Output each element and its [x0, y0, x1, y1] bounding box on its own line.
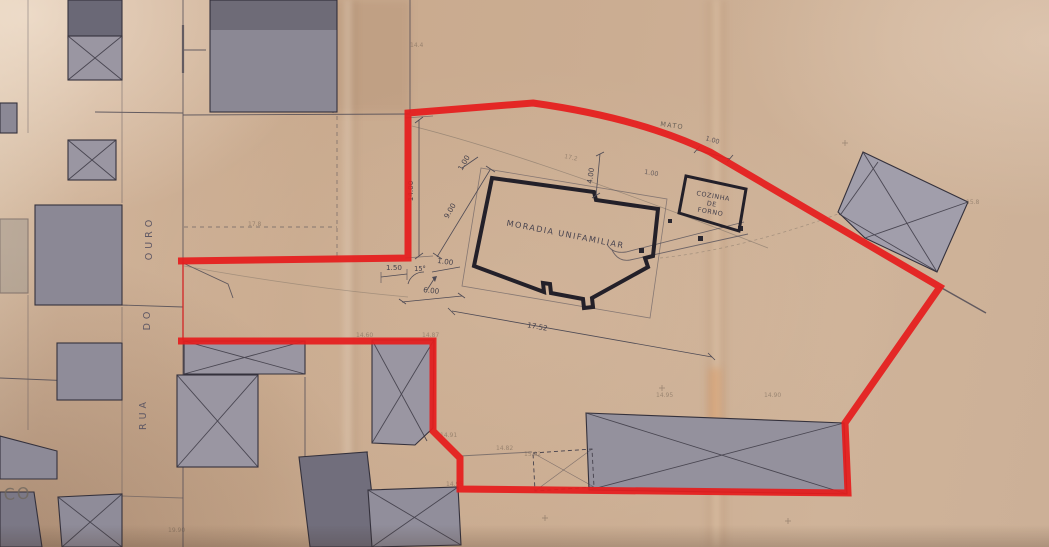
building-northeast [838, 152, 968, 272]
building-west-dark [68, 0, 122, 38]
spot-mark: 14.90 [764, 392, 781, 399]
spot-mark: 15.02 [524, 451, 541, 458]
building-dark-south [299, 452, 378, 547]
site-plan-photo: OURO DO RUA MORADIA UNIFAMILIAR COZINHA … [0, 0, 1049, 547]
dim-angle: 15° [414, 265, 426, 273]
curb-step [183, 263, 233, 298]
dim-400: 4.00 [585, 167, 596, 185]
spot-mark: 14.82 [496, 445, 513, 452]
spot-mark: 17.2 [564, 153, 579, 163]
spot-mark: 19.90 [168, 527, 185, 534]
angle-arc [408, 272, 424, 284]
street-name-word-rua: RUA [138, 398, 149, 430]
building-edge-partial2 [0, 219, 28, 293]
handwritten-corner-note: CO [3, 484, 32, 504]
annex-label-line3: FORNO [697, 206, 724, 218]
spot-mark: 15.8 [966, 199, 980, 206]
neighbour-buildings [0, 0, 968, 547]
street-name-word-do: DO [142, 308, 153, 331]
dim-100-c: 1.00 [437, 256, 455, 267]
building-edge-partial [0, 103, 17, 133]
terrain-lines [184, 126, 838, 297]
building-sw-a [0, 436, 57, 479]
annex-label: COZINHA DE FORNO [693, 189, 731, 219]
building-west-lower [57, 343, 122, 400]
dim-1752: 17.52 [527, 320, 549, 332]
proposed-annex-dashed [533, 449, 594, 491]
building-west-large [35, 205, 122, 305]
dim-100-b: 1.00 [644, 168, 659, 178]
dim-150: 1.50 [386, 263, 402, 272]
boundary-continuation [940, 287, 986, 313]
spot-elevations: 14.4 17.2 14.60 14.87 14.91 14.82 15.02 … [168, 42, 980, 534]
main-house-outline [474, 178, 658, 308]
dim-900: 9.00 [442, 201, 458, 220]
dim-100-d: 1.00 [705, 134, 721, 146]
spot-mark: 14.4 [410, 42, 424, 49]
site-plan-drawing: OURO DO RUA MORADIA UNIFAMILIAR COZINHA … [0, 0, 1049, 547]
dim-600: 6.00 [423, 285, 440, 296]
street-name-word-ouro: OURO [144, 216, 155, 261]
spot-mark: 17.8 [248, 221, 262, 228]
main-house-label: MORADIA UNIFAMILIAR [506, 218, 626, 251]
spot-mark: 14.95 [656, 392, 673, 399]
